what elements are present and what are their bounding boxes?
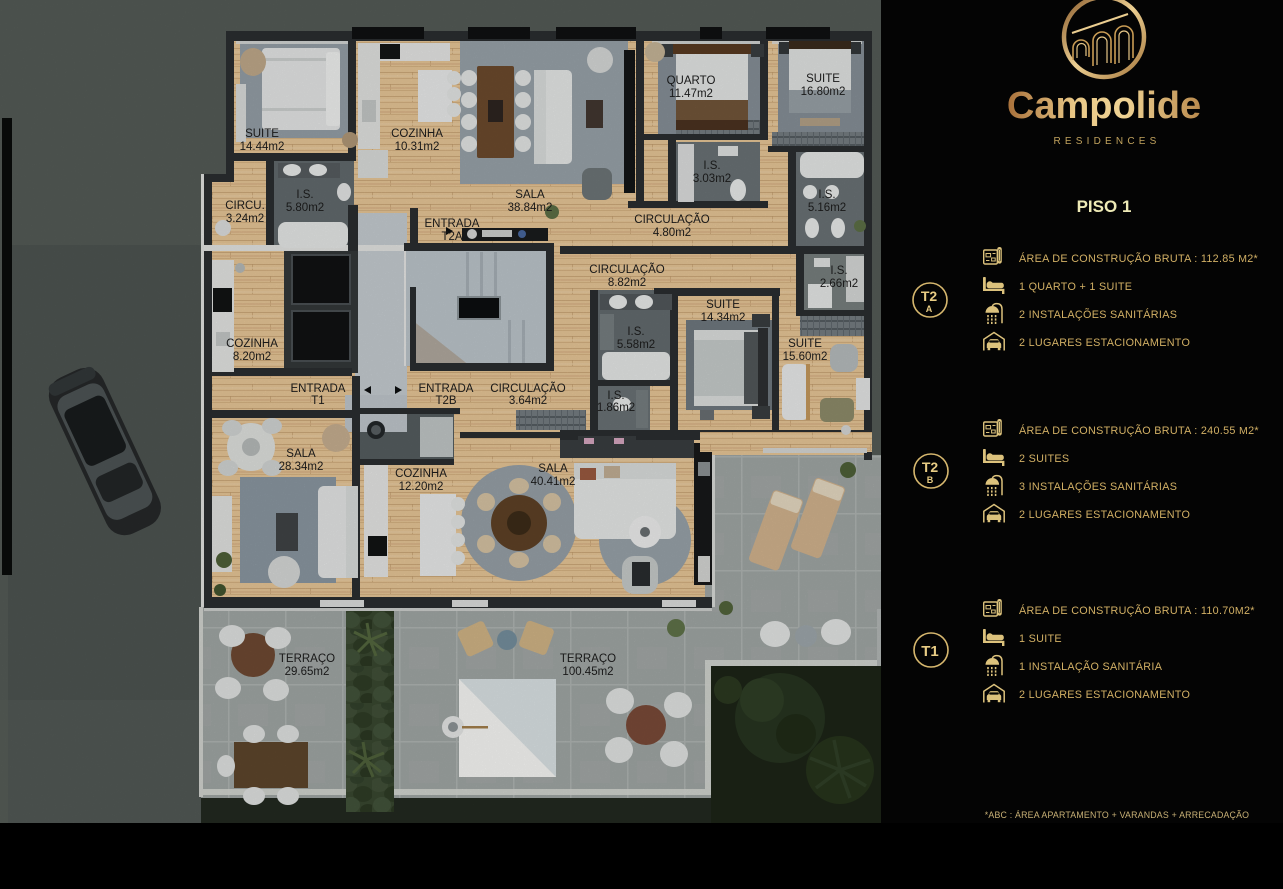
svg-text:T2: T2 — [922, 459, 939, 475]
svg-text:ÁREA DE CONSTRUÇÃO BRUTA : 11: ÁREA DE CONSTRUÇÃO BRUTA : 112.85 M2* — [1019, 252, 1259, 265]
svg-text:1 SUITE: 1 SUITE — [1019, 633, 1062, 645]
svg-text:PISO 1: PISO 1 — [1077, 197, 1132, 216]
svg-text:2 LUGARES ESTACIONAMENTO: 2 LUGARES ESTACIONAMENTO — [1019, 509, 1190, 521]
svg-text:1 QUARTO + 1 SUITE: 1 QUARTO + 1 SUITE — [1019, 281, 1132, 293]
svg-text:2 LUGARES ESTACIONAMENTO: 2 LUGARES ESTACIONAMENTO — [1019, 337, 1190, 349]
svg-text:2 SUITES: 2 SUITES — [1019, 453, 1069, 465]
svg-text:3 INSTALAÇÕES SANITÁRIAS: 3 INSTALAÇÕES SANITÁRIAS — [1019, 480, 1177, 493]
svg-text:2 LUGARES ESTACIONAMENTO: 2 LUGARES ESTACIONAMENTO — [1019, 689, 1190, 701]
svg-text:B: B — [927, 475, 934, 485]
svg-text:ÁREA DE CONSTRUÇÃO BRUTA : 24: ÁREA DE CONSTRUÇÃO BRUTA : 240.55 M2* — [1019, 424, 1259, 437]
svg-text:A: A — [926, 304, 933, 314]
svg-text:RESIDENCES: RESIDENCES — [1053, 136, 1160, 147]
svg-text:T2: T2 — [921, 288, 938, 304]
svg-text:ÁREA DE CONSTRUÇÃO BRUTA : 11: ÁREA DE CONSTRUÇÃO BRUTA : 110.70M2* — [1019, 604, 1255, 617]
svg-text:T1: T1 — [921, 643, 939, 660]
svg-text:*ABC : ÁREA APARTAMENTO + VAR: *ABC : ÁREA APARTAMENTO + VARANDAS + ARR… — [985, 810, 1249, 820]
svg-text:1 INSTALAÇÃO SANITÁRIA: 1 INSTALAÇÃO SANITÁRIA — [1019, 660, 1163, 673]
svg-text:2 INSTALAÇÕES SANITÁRIAS: 2 INSTALAÇÕES SANITÁRIAS — [1019, 308, 1177, 321]
svg-text:Campolide: Campolide — [1007, 85, 1201, 127]
